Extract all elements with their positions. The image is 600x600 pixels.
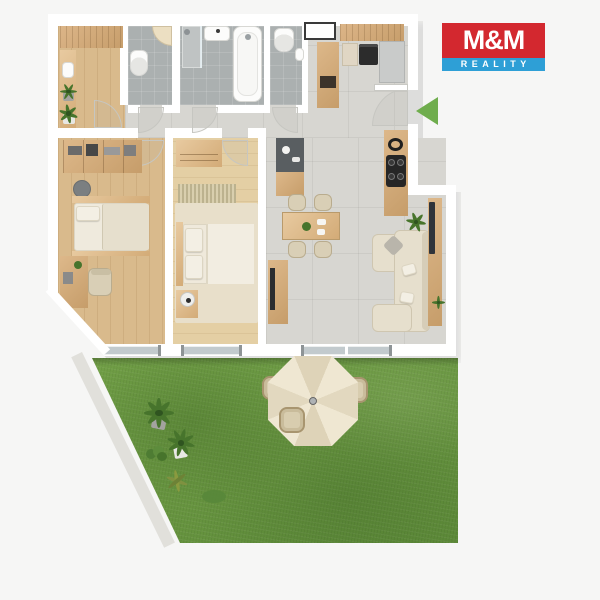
hall-wardrobe xyxy=(60,26,123,48)
shower-head xyxy=(184,29,190,35)
table-plate xyxy=(317,219,326,225)
garden-chair-south xyxy=(279,407,305,433)
bedroom1-window xyxy=(102,346,160,355)
sliding-door-mullion xyxy=(345,346,348,355)
tv xyxy=(429,202,435,254)
sideboard xyxy=(268,260,288,324)
double-bed xyxy=(176,222,256,286)
side-table xyxy=(180,292,195,307)
books xyxy=(104,147,120,155)
small-washbasin xyxy=(295,48,304,61)
bedroom2-window xyxy=(183,346,240,355)
garden-shrub xyxy=(146,446,168,462)
toilet xyxy=(130,50,148,76)
island-dish xyxy=(292,157,300,162)
table-plant xyxy=(302,222,311,231)
kitchen-cabinet xyxy=(342,43,358,66)
books xyxy=(124,145,136,156)
bathtub xyxy=(233,26,262,102)
garden-plant-2 xyxy=(167,431,195,455)
living-plant xyxy=(406,212,426,232)
entry-door-leaf xyxy=(374,84,408,91)
garden-plant-3 xyxy=(166,472,188,490)
tall-cabinet xyxy=(317,42,339,108)
toilet-2 xyxy=(274,28,294,52)
wall-exterior-right-a xyxy=(408,14,418,90)
window-post xyxy=(389,345,392,356)
wall-wc-bath xyxy=(172,24,180,105)
sideboard-tv xyxy=(270,268,275,310)
parasol-pole xyxy=(309,397,317,405)
table-plate xyxy=(317,229,325,235)
hall-plant xyxy=(60,84,77,99)
kitchen-island xyxy=(276,138,304,196)
wall-exterior-left xyxy=(48,14,58,302)
corner-sofa xyxy=(372,230,430,332)
living-plant-2 xyxy=(432,296,445,309)
desk-plant xyxy=(74,261,82,269)
window-post xyxy=(301,345,304,356)
wall-hallway-3 xyxy=(216,105,270,113)
bed-duvet xyxy=(102,204,149,250)
bed2-headboard xyxy=(176,222,183,286)
wardrobe-dresser xyxy=(176,140,222,167)
bed2-pillow xyxy=(185,255,203,279)
window-post xyxy=(158,345,161,356)
parasol xyxy=(268,356,358,446)
books xyxy=(68,146,82,155)
bed2-duvet xyxy=(206,224,254,284)
kitchen-open-shelf xyxy=(340,24,404,41)
wall-bedroom1-bedroom2 xyxy=(165,128,173,346)
sofa-cushion xyxy=(399,291,415,304)
wall-bath-wc2 xyxy=(264,24,270,105)
hall-picture-frame xyxy=(62,62,74,78)
cooktop xyxy=(386,155,406,187)
logo-subtitle: REALITY xyxy=(442,58,545,71)
dining-chair xyxy=(288,241,306,258)
dining-chair xyxy=(314,194,332,211)
single-bed xyxy=(72,196,150,256)
runner-rug xyxy=(178,184,236,203)
oven xyxy=(359,44,378,65)
wall-bedroom2-living xyxy=(258,128,266,346)
window-post xyxy=(181,345,184,356)
bed-headboard xyxy=(72,196,150,203)
bathroom-washbasin xyxy=(204,26,230,41)
fridge xyxy=(379,41,405,83)
pot xyxy=(388,138,403,151)
books xyxy=(86,144,98,156)
bed2-pillow xyxy=(185,228,203,252)
agency-logo: M&M REALITY xyxy=(442,23,545,71)
garden-grass-tuft xyxy=(202,490,226,503)
shower-glass xyxy=(200,26,202,68)
dining-chair xyxy=(288,194,306,211)
desk-chair xyxy=(88,268,112,296)
wall-bedroom1-top xyxy=(58,128,138,138)
bookshelf xyxy=(63,140,142,173)
wall-window-frame xyxy=(304,22,336,40)
dining-table xyxy=(282,212,340,240)
window-post xyxy=(239,345,242,356)
island-sink xyxy=(282,146,290,154)
wall-exterior-right-b xyxy=(408,124,418,190)
bed-pillow xyxy=(76,206,100,221)
wall-exterior-right-c xyxy=(446,193,456,356)
bathtub-faucet xyxy=(245,34,251,40)
garden-plant xyxy=(144,400,174,426)
hall-plant-2 xyxy=(59,105,78,122)
dining-chair xyxy=(314,241,332,258)
floor-plan-render: M&M REALITY xyxy=(0,0,600,600)
logo-title: M&M xyxy=(442,23,545,58)
desk-books xyxy=(63,272,73,284)
wall-hallway-2 xyxy=(162,105,180,113)
